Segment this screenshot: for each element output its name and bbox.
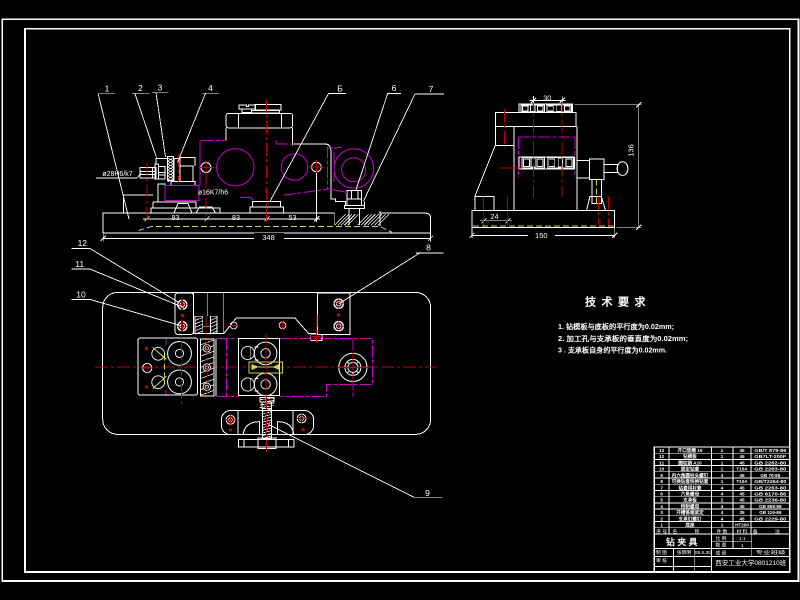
svg-text:GB/T 879-86: GB/T 879-86	[754, 448, 787, 453]
svg-text:10: 10	[76, 289, 86, 299]
svg-text:7: 7	[660, 485, 663, 490]
svg-text:开槽锥端紧定: 开槽锥端紧定	[676, 509, 704, 516]
svg-text:150: 150	[535, 231, 548, 240]
svg-text:45: 45	[739, 504, 745, 509]
svg-text:备 注: 备 注	[753, 528, 788, 535]
svg-text:GB7LT-200F: GB7LT-200F	[754, 454, 786, 459]
svg-text:T10A: T10A	[736, 467, 748, 472]
svg-text:53: 53	[289, 213, 297, 222]
svg-text:30: 30	[543, 94, 551, 103]
svg-text:1: 1	[721, 460, 724, 465]
svg-text:6: 6	[392, 83, 397, 93]
svg-text:2: 2	[660, 516, 663, 521]
svg-text:GB 2229-80: GB 2229-80	[754, 516, 787, 521]
svg-text:1: 1	[105, 84, 110, 94]
svg-text:3: 3	[158, 83, 163, 93]
svg-text:开口垫圈 16: 开口垫圈 16	[678, 447, 703, 454]
svg-text:钻套用衬套: 钻套用衬套	[679, 484, 702, 491]
svg-text:136: 136	[627, 144, 636, 157]
svg-text:圆柱销 A10: 圆柱销 A10	[678, 459, 702, 466]
svg-text:4: 4	[660, 504, 663, 509]
svg-text:5: 5	[660, 498, 663, 503]
svg-text:GB 858-88: GB 858-88	[759, 504, 782, 509]
svg-text:可换钻套快换钻套: 可换钻套快换钻套	[672, 478, 709, 485]
svg-text:1: 1	[741, 543, 744, 549]
svg-text:24: 24	[491, 212, 499, 221]
svg-text:审 核: 审 核	[656, 557, 667, 564]
svg-text:序 号: 序 号	[656, 528, 667, 535]
svg-text:GB 2236-80: GB 2236-80	[754, 498, 787, 503]
svg-text:GB 119-86: GB 119-86	[759, 510, 782, 515]
svg-text:8: 8	[660, 479, 663, 484]
svg-text:六角螺母: 六角螺母	[681, 491, 700, 498]
svg-text:GB 2262-80: GB 2262-80	[754, 460, 787, 465]
svg-text:9: 9	[660, 473, 663, 478]
svg-text:9: 9	[425, 488, 430, 498]
svg-text:45: 45	[739, 454, 745, 459]
svg-text:8: 8	[426, 243, 431, 253]
svg-text:张晓明: 张晓明	[677, 549, 692, 556]
svg-text:6: 6	[660, 492, 663, 497]
svg-text:名 称: 名 称	[673, 528, 708, 535]
svg-text:数 量: 数 量	[716, 542, 727, 549]
svg-text:1: 1	[660, 523, 663, 528]
svg-text:3 . 支承板自身的平行度为0.02mm.: 3 . 支承板自身的平行度为0.02mm.	[558, 346, 667, 355]
svg-text:ø28H6/k7: ø28H6/k7	[102, 171, 132, 178]
svg-text:348: 348	[262, 233, 275, 242]
svg-text:4: 4	[208, 83, 213, 93]
svg-text:1: 1	[721, 467, 724, 472]
svg-text:制 图: 制 图	[656, 549, 667, 556]
svg-text:45: 45	[739, 460, 745, 465]
svg-text:GB 6170-86: GB 6170-86	[754, 492, 787, 497]
svg-text:GB/T2264-80: GB/T2264-80	[754, 479, 786, 484]
svg-text:专业班级: 专业班级	[756, 549, 786, 556]
svg-text:钻模板: 钻模板	[683, 453, 697, 460]
svg-text:1: 1	[721, 448, 724, 453]
svg-text:35: 35	[739, 510, 745, 515]
svg-text:GB 2263-80: GB 2263-80	[754, 467, 787, 472]
svg-text:12: 12	[78, 238, 88, 248]
svg-text:GB 70-85: GB 70-85	[760, 473, 780, 478]
svg-text:2: 2	[138, 83, 143, 93]
svg-text:45: 45	[739, 473, 745, 478]
svg-text:11: 11	[75, 259, 84, 269]
svg-text:2: 2	[721, 498, 724, 503]
svg-text:1: 1	[721, 479, 724, 484]
svg-text:11: 11	[659, 460, 664, 465]
svg-text:内六角圆柱头螺钉: 内六角圆柱头螺钉	[672, 472, 709, 479]
svg-text:45: 45	[739, 516, 745, 521]
svg-text:4: 4	[721, 516, 724, 521]
svg-text:西安工业大学0801210班: 西安工业大学0801210班	[715, 558, 787, 567]
svg-text:83: 83	[232, 213, 240, 222]
svg-text:45: 45	[739, 485, 745, 490]
svg-text:特制螺母: 特制螺母	[681, 503, 700, 510]
svg-text:3: 3	[660, 510, 663, 515]
svg-text:比 例: 比 例	[716, 535, 727, 542]
svg-text:2. 加工孔与支承板的垂直度为0.02mm;: 2. 加工孔与支承板的垂直度为0.02mm;	[558, 334, 688, 343]
svg-text:4: 4	[721, 504, 724, 509]
svg-text:钻夹具: 钻夹具	[666, 536, 700, 547]
svg-text:成 绩: 成 绩	[716, 549, 727, 556]
svg-text:45: 45	[739, 492, 745, 497]
svg-text:1:1: 1:1	[739, 536, 746, 542]
svg-text:支承钉螺钉: 支承钉螺钉	[679, 515, 702, 522]
svg-text:GB 2263-80: GB 2263-80	[754, 485, 787, 490]
svg-text:Б: Б	[337, 83, 343, 93]
svg-text:83: 83	[172, 213, 180, 222]
svg-text:1: 1	[721, 454, 724, 459]
svg-text:4: 4	[721, 510, 724, 515]
svg-text:45: 45	[739, 448, 745, 453]
svg-text:1: 1	[721, 523, 724, 528]
svg-text:10: 10	[659, 467, 665, 472]
svg-text:技术要求: 技术要求	[585, 295, 651, 309]
svg-text:1. 钻模板与底板的平行度为0.02mm;: 1. 钻模板与底板的平行度为0.02mm;	[558, 322, 674, 331]
svg-text:4: 4	[721, 473, 724, 478]
svg-text:4: 4	[721, 492, 724, 497]
svg-text:45: 45	[739, 498, 745, 503]
svg-text:HT200: HT200	[735, 523, 749, 528]
svg-text:件 数: 件 数	[717, 528, 728, 535]
svg-text:7: 7	[429, 84, 434, 94]
svg-text:ø16K7/h6: ø16K7/h6	[198, 189, 228, 196]
svg-text:固定钻套: 固定钻套	[681, 466, 700, 473]
svg-text:13: 13	[659, 448, 665, 453]
svg-text:材 料: 材 料	[737, 528, 748, 535]
svg-text:08.5.30: 08.5.30	[695, 550, 711, 556]
svg-text:12: 12	[659, 454, 665, 459]
svg-text:4: 4	[721, 485, 724, 490]
svg-text:T10A: T10A	[736, 479, 748, 484]
svg-text:支承板: 支承板	[683, 497, 697, 504]
